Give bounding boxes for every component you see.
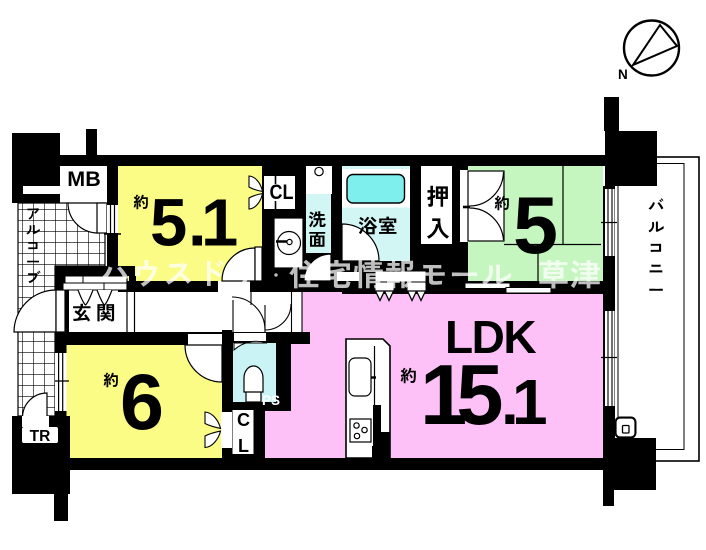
svg-text:L: L bbox=[238, 436, 249, 456]
svg-text:6: 6 bbox=[120, 357, 164, 446]
svg-text:1: 1 bbox=[201, 186, 238, 261]
svg-text:5: 5 bbox=[150, 186, 187, 261]
svg-text:TR: TR bbox=[30, 428, 51, 445]
svg-text:C: C bbox=[237, 410, 250, 430]
svg-text:N: N bbox=[618, 67, 628, 82]
svg-text:1: 1 bbox=[512, 366, 548, 438]
svg-text:MB: MB bbox=[67, 167, 100, 191]
svg-text:15: 15 bbox=[420, 348, 501, 443]
svg-text:CL: CL bbox=[270, 180, 294, 204]
svg-text:5: 5 bbox=[513, 181, 558, 271]
svg-text:PS: PS bbox=[262, 393, 280, 408]
